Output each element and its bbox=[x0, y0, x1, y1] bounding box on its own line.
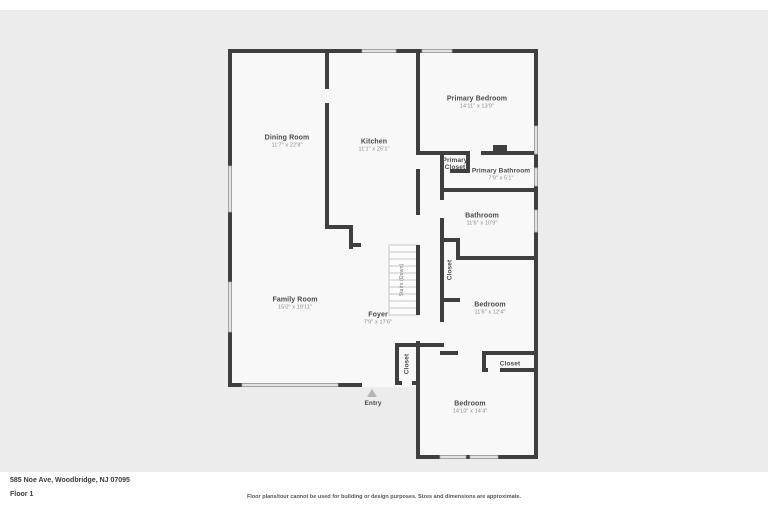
room-label-bedroom-3-closet: Closet bbox=[500, 361, 520, 368]
room-label-family-room: Family Room 15'0" x 19'11" bbox=[272, 297, 317, 312]
room-label-bedroom-3: Bedroom 14'10" x 14'4" bbox=[453, 401, 488, 416]
room-label-dining-room: Dining Room 11'7" x 22'8" bbox=[265, 135, 310, 150]
floor-area bbox=[228, 49, 538, 459]
room-label-primary-closet: Primary Closet bbox=[438, 157, 472, 171]
room-label-primary-bedroom: Primary Bedroom 14'11" x 13'9" bbox=[447, 96, 507, 111]
room-label-kitchen: Kitchen 11'1" x 25'1" bbox=[358, 139, 389, 154]
room-label-hall-closet: Closet bbox=[447, 260, 454, 280]
room-label-bathroom: Bathroom 11'6" x 10'9" bbox=[465, 213, 499, 228]
room-label-primary-bathroom: Primary Bathroom 7'9" x 5'1" bbox=[472, 168, 530, 183]
entry-direction-icon bbox=[367, 389, 377, 397]
room-label-foyer-closet: Closet bbox=[404, 354, 411, 374]
room-label-stairs-down: Stairs (Down) bbox=[398, 264, 406, 297]
room-label-foyer: Foyer 7'9" x 17'6" bbox=[364, 312, 392, 327]
floor-plan-drawing bbox=[0, 0, 768, 512]
disclaimer-text: Floor plans/tour cannot be used for buil… bbox=[0, 494, 768, 500]
floor-plan-page: Dining Room 11'7" x 22'8" Kitchen 11'1" … bbox=[0, 0, 768, 512]
property-address: 585 Noe Ave, Woodbridge, NJ 07095 bbox=[10, 477, 130, 484]
entry-label: Entry bbox=[364, 400, 381, 408]
room-label-bedroom-2: Bedroom 11'6" x 12'4" bbox=[474, 302, 505, 317]
